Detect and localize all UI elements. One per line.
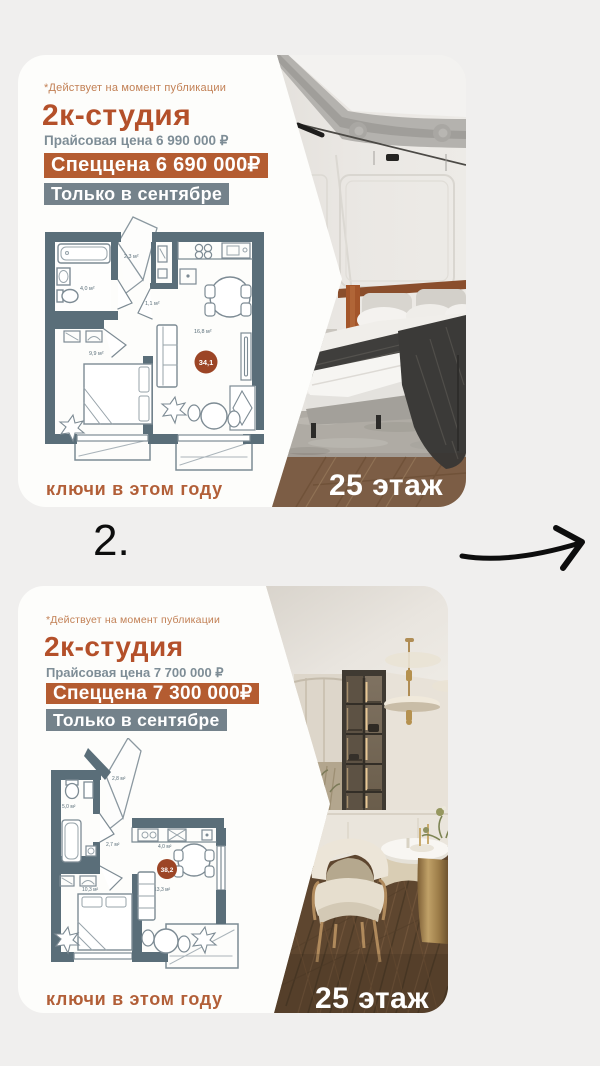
svg-text:5,0 м²: 5,0 м² — [62, 804, 76, 810]
svg-text:38,2: 38,2 — [161, 867, 174, 874]
svg-text:34,1: 34,1 — [199, 358, 214, 367]
svg-text:4,0 м²: 4,0 м² — [80, 286, 95, 292]
svg-text:2,7 м²: 2,7 м² — [106, 842, 120, 848]
svg-text:2,3 м²: 2,3 м² — [124, 254, 139, 260]
svg-text:10,3 м²: 10,3 м² — [82, 887, 99, 893]
svg-text:1,1 м²: 1,1 м² — [145, 301, 160, 307]
svg-text:9,9 м²: 9,9 м² — [89, 351, 104, 357]
svg-text:13,3 м²: 13,3 м² — [154, 887, 171, 893]
svg-text:2,8 м²: 2,8 м² — [112, 776, 126, 782]
svg-text:16,8 м²: 16,8 м² — [194, 329, 212, 335]
svg-text:4,0 м²: 4,0 м² — [158, 844, 172, 850]
